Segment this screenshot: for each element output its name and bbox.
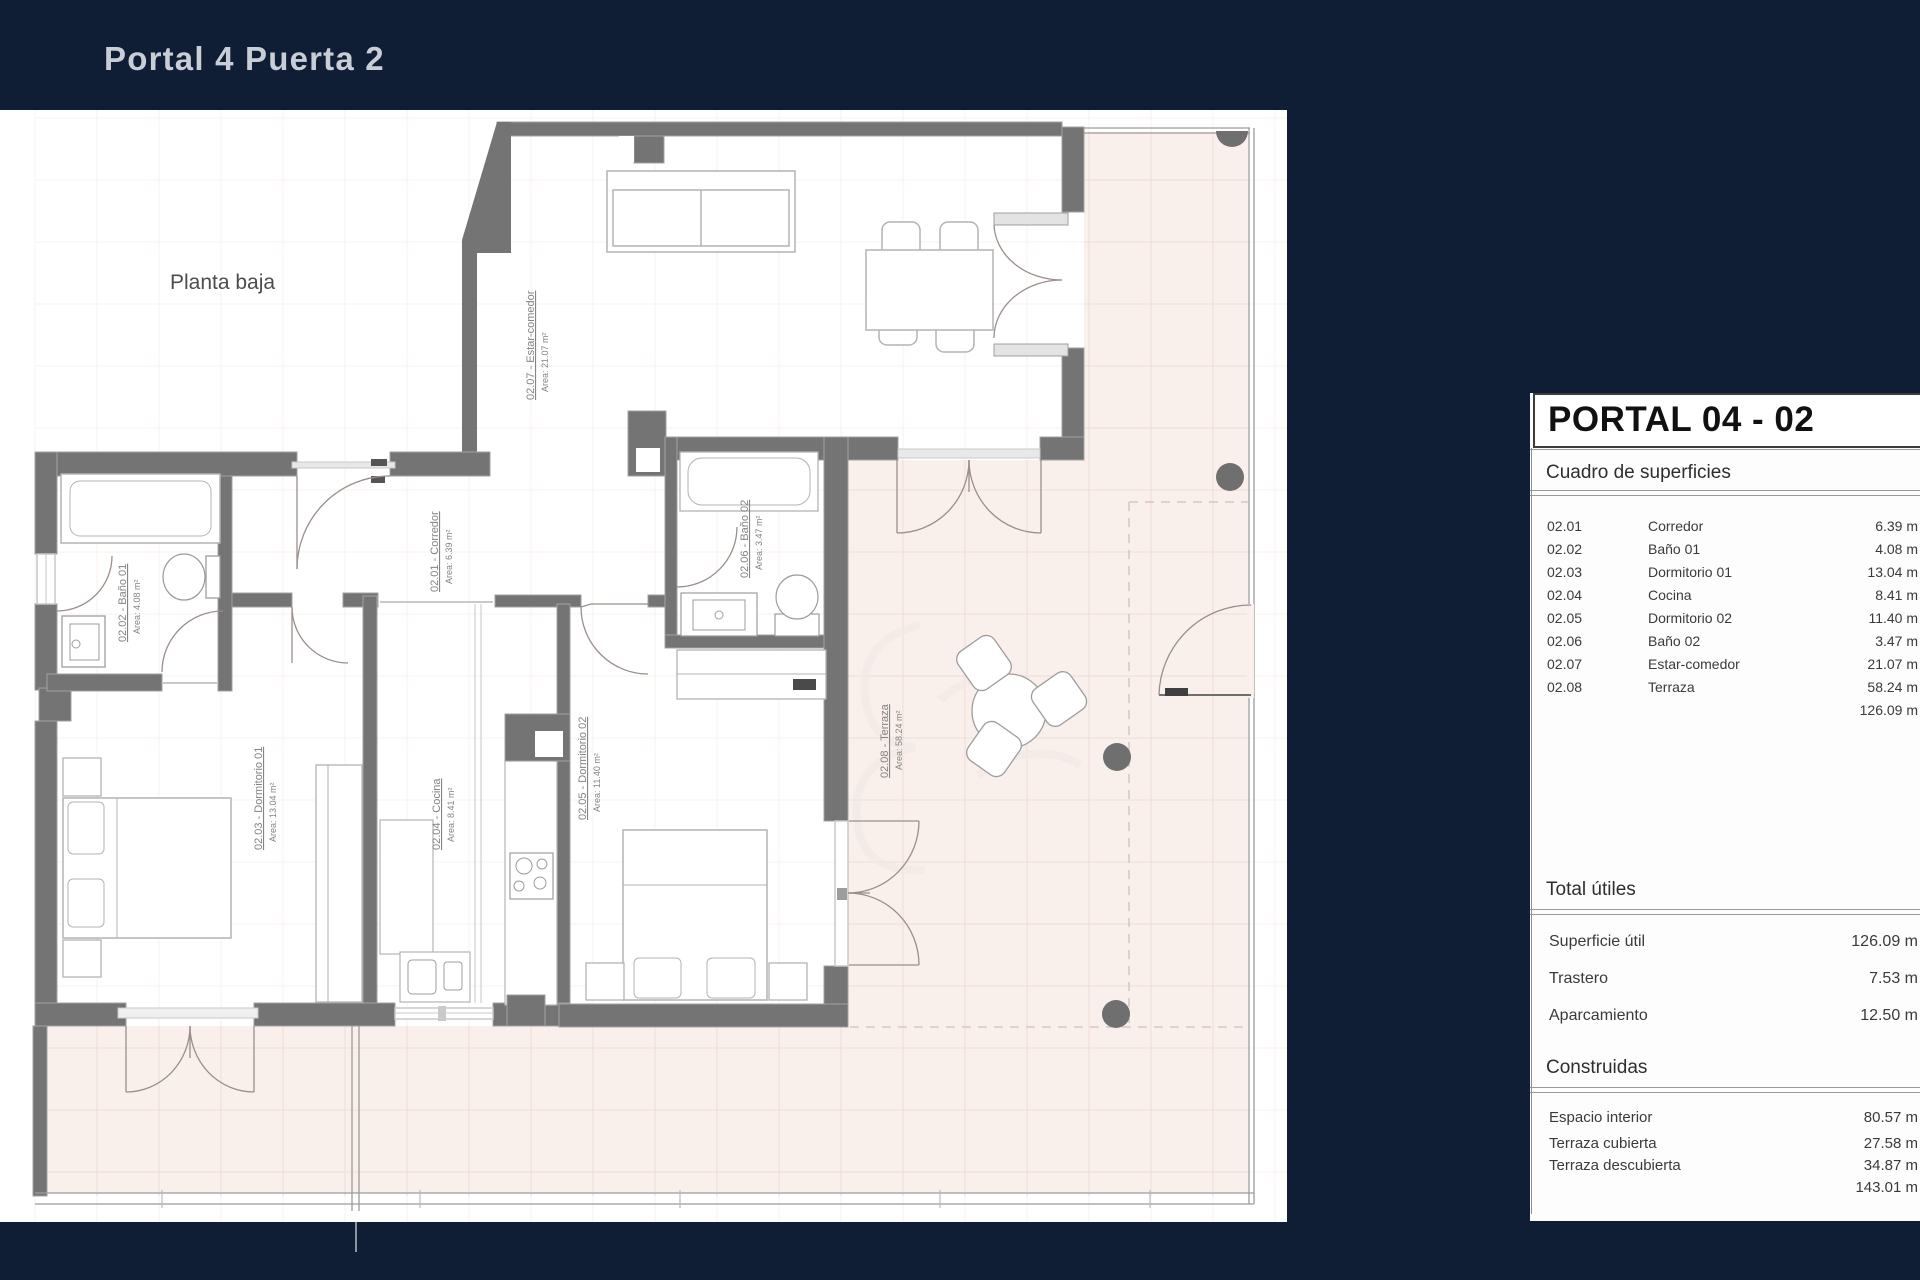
- svg-text:Area: 21.07 m²: Area: 21.07 m²: [540, 332, 550, 392]
- svg-text:02.05 - Dormitorio 02: 02.05 - Dormitorio 02: [577, 717, 589, 820]
- svg-text:Area: 3.47 m²: Area: 3.47 m²: [754, 515, 764, 570]
- svg-text:Planta baja: Planta baja: [170, 271, 275, 294]
- svg-text:02.08 - Terraza: 02.08 - Terraza: [879, 703, 891, 778]
- svg-text:Area: 11.40 m²: Area: 11.40 m²: [592, 753, 602, 812]
- svg-text:Area: 6.39 m²: Area: 6.39 m²: [444, 529, 454, 584]
- svg-text:Area: 58.24 m²: Area: 58.24 m²: [894, 710, 904, 770]
- svg-text:Area: 8.41 m²: Area: 8.41 m²: [446, 787, 456, 842]
- svg-text:02.06 - Baño 02: 02.06 - Baño 02: [739, 500, 751, 578]
- svg-text:02.01 - Corredor: 02.01 - Corredor: [429, 511, 441, 592]
- svg-text:02.02 - Baño 01: 02.02 - Baño 01: [117, 564, 129, 642]
- svg-text:Area: 4.08 m²: Area: 4.08 m²: [132, 579, 142, 634]
- svg-text:02.03 - Dormitorio 01: 02.03 - Dormitorio 01: [253, 747, 265, 850]
- svg-text:Area: 13.04 m²: Area: 13.04 m²: [268, 782, 278, 842]
- svg-text:02.04 - Cocina: 02.04 - Cocina: [431, 778, 443, 850]
- svg-text:02.07 - Estar-comedor: 02.07 - Estar-comedor: [525, 290, 537, 400]
